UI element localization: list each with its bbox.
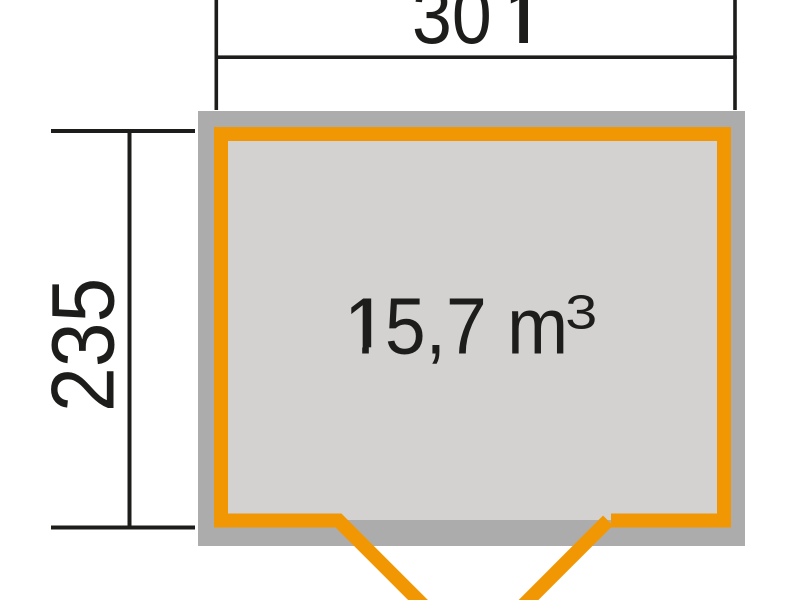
svg-text:3: 3	[565, 287, 597, 340]
svg-text:235: 235	[33, 278, 133, 412]
svg-text:15,7 m: 15,7 m	[344, 282, 568, 371]
svg-text:30: 30	[412, 0, 492, 60]
